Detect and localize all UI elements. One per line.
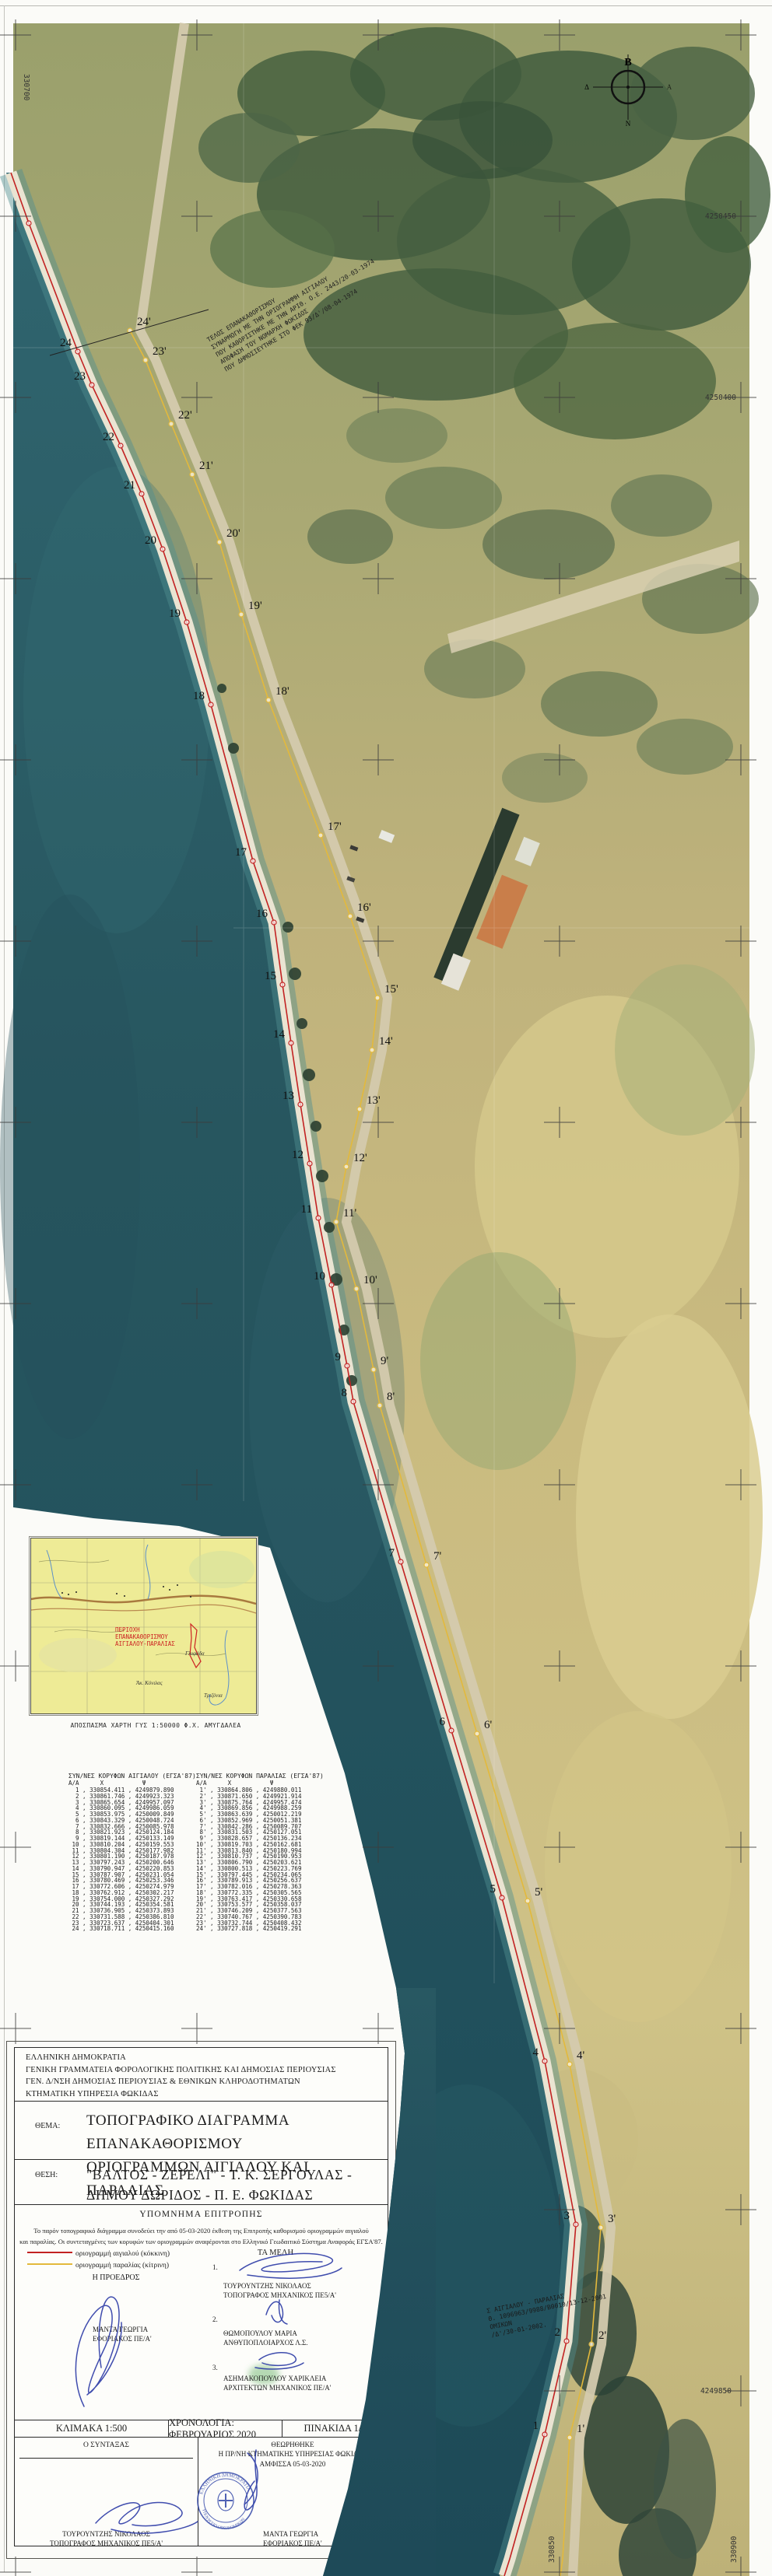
compass-north-label: Β [624,57,631,68]
survey-point-label: 12 [292,1149,304,1161]
survey-point-label: 21' [199,460,213,472]
author-label: Ο ΣΥΝΤΑΞΑΣ [15,2441,198,2449]
survey-point [567,2062,572,2067]
vegetation-patch [482,509,615,579]
survey-point-label: 18' [275,685,289,698]
vegetation-patch [514,323,716,439]
approval-place-date: ΑΜΦΙΣΣΑ 05-03-2020 [198,2460,388,2468]
legend-label: οριογραμμή παραλίας (κίτρινη) [75,2262,169,2270]
survey-point [26,221,31,226]
survey-point-label: 10' [363,1274,377,1286]
inset-stream [47,1550,62,1599]
inset-placename: Άκ. Κόνιλας [135,1680,163,1686]
inset-stream [146,1545,150,1599]
chairwoman-label: Η ΠΡΟΕΔΡΟΣ [61,2273,170,2282]
survey-point-label: 7' [433,1550,442,1563]
author-title: ΤΟΠΟΓΡΑΦΟΣ ΜΗΧΑΝΙΚΟΣ ΠΕ5/Α' [15,2539,198,2548]
survey-point [567,2435,572,2440]
survey-point-label: 15' [384,983,398,996]
member-name: ΤΟΥΡΟΥΝΤΖΗΣ ΝΙΚΟΛΑΟΣ [223,2281,336,2291]
survey-point [334,1220,339,1224]
survey-point-label: 4 [533,2046,539,2059]
survey-point [542,2059,547,2063]
paralia-coordinates-table: ΣΥΝ/ΝΕΣ ΚΟΡΥΦΩΝ ΠΑΡΑΛΙΑΣ (ΕΓΣΑ'87) Α/Α Χ… [196,1773,340,1932]
survey-point [289,1041,293,1045]
survey-point-label: 14 [273,1028,286,1041]
inset-placename: Τριζόνια [204,1692,223,1699]
survey-point-label: 14' [379,1035,393,1048]
survey-point [266,698,271,702]
subject-label: ΘΕΜΑ: [35,2122,60,2130]
survey-point-label: 6' [484,1719,493,1731]
survey-point-label: 9' [381,1355,389,1367]
inset-redetermination-area-outline [190,1624,201,1668]
member-number: 1. [212,2263,218,2272]
survey-point [357,1107,362,1111]
member-number: 2. [212,2315,218,2324]
approved-authority: Η ΠΡ/ΝΗ ΚΤΗΜΑΤΙΚΗΣ ΥΠΗΡΕΣΙΑΣ ΦΩΚΙΔΑΣ [198,2449,388,2459]
survey-point-label: 16 [256,908,268,920]
member-title: ΑΝΘΥΠΟΠΛΟΙΑΡΧΟΣ Λ.Σ. [223,2338,307,2347]
survey-point-label: 15 [265,970,276,982]
survey-point-label: 16' [357,901,371,914]
inset-area-label-line: ΑΙΓΙΑΛΟΥ-ΠΑΡΑΛΙΑΣ [115,1640,175,1647]
survey-point [239,612,244,617]
survey-point-label: 11 [301,1203,312,1216]
vegetation-patch [424,639,525,698]
survey-point [348,914,353,919]
grid-y-label: 4250450 [705,212,736,221]
inset-area-label: ΠΕΡΙΟΧΗ ΕΠΑΝΑΚΑΘΟΡΙΣΜΟΥ ΑΙΓΙΑΛΟΥ-ΠΑΡΑΛΙΑ… [115,1626,175,1647]
survey-point [370,1048,374,1052]
paralia-line-swatch [27,2263,72,2265]
survey-point [329,1283,334,1287]
survey-point-label: 24' [137,316,151,328]
member-entry: 2. ΘΩΜΟΠΟΥΛΟΥ ΜΑΡΙΑ ΑΝΘΥΠΟΠΛΟΙΑΡΧΟΣ Λ.Σ. [223,2329,307,2347]
survey-point-label: 19' [248,600,262,612]
vegetation-patch [420,1252,576,1470]
vegetation-patch [545,1711,732,2022]
inset-road [31,1605,256,1613]
survey-point-label: 10 [314,1270,325,1283]
vegetation-patch [385,467,502,529]
sheet-cell: ΠΙΝΑΚΙΔΑ 1/1 [282,2420,388,2437]
survey-point-label: 3 [564,2210,570,2222]
table-rows: 1 , 330854.411 , 4249879.890 2 , 330861.… [68,1787,212,1932]
sea-texture [0,894,140,1439]
member-entry: 3. ΑΣΗΜΑΚΟΠΟΥΛΟΥ ΧΑΡΙΚΛΕΙΑ ΑΡΧΙΤΕΚΤΩΝ ΜΗ… [223,2374,331,2392]
approved-label: ΘΕΩΡΗΘΗΚΕ [198,2440,388,2449]
survey-point [574,2222,578,2227]
survey-point [351,1399,356,1404]
coord-row: 24' , 330727.818 , 4250419.291 [196,1926,340,1932]
grid-y-label: 4249850 [700,2387,732,2396]
member-title: ΑΡΧΙΤΕΚΤΩΝ ΜΗΧΑΝΙΚΟΣ ΠΕ/Α' [223,2383,331,2392]
vegetation-patch [346,408,447,463]
survey-point-label: 2' [598,2329,607,2342]
survey-point [589,2342,594,2347]
inset-area-label-line: ΠΕΡΙΟΧΗ [115,1626,140,1633]
survey-point-label: 7 [389,1547,395,1559]
survey-point [564,2339,569,2343]
survey-point-label: 1' [577,2423,585,2435]
table-column-headers: Α/Α Χ Ψ [196,1780,340,1787]
signatures-row: Ο ΣΥΝΤΑΞΑΣ ΤΟΥΡΟΥΝΤΖΗΣ ΝΙΚΟΛΑΟΣ ΤΟΠΟΓΡΑΦ… [15,2437,388,2546]
vegetation-patch [685,136,770,253]
vegetation-patch [611,474,712,537]
survey-point-label: 13' [367,1094,381,1107]
inset-road [31,1596,256,1604]
members-label: ΤΑ ΜΕΛΗ [213,2249,338,2257]
survey-point [475,1731,479,1736]
survey-point-label: 12' [353,1152,367,1164]
aigialos-line-swatch [27,2252,72,2253]
survey-point-label: 23 [74,370,86,383]
survey-point [371,1367,376,1372]
survey-point [169,422,174,426]
survey-point-label: 11' [343,1207,356,1220]
survey-point [500,1895,504,1900]
survey-point [298,1102,303,1107]
scale-date-sheet-row: ΚΛΙΜΑΚΑ 1:500 ΧΡΟΝΟΛΟΓΙΑ: ΦΕΒΡΟΥΑΡΙΟΣ 20… [15,2420,388,2437]
survey-point [280,982,285,987]
aigialos-coordinates-table: ΣΥΝ/ΝΕΣ ΚΟΡΥΦΩΝ ΑΙΓΙΑΛΟΥ (ΕΓΣΑ'87) Α/Α Χ… [68,1773,212,1932]
survey-point-label: 21 [124,479,135,492]
survey-point-label: 5 [490,1883,497,1895]
survey-point-label: 23' [153,345,167,358]
survey-point [184,620,189,625]
compass-east-label: Α [667,83,672,91]
location-label: ΘΕΣΗ: [35,2171,58,2179]
survey-point-label: 1 [533,2420,539,2432]
committee-note-heading: ΥΠΟΜΝΗΜΑ ΕΠΙΤΡΟΠΗΣ [15,2210,388,2219]
scale-cell: ΚΛΙΜΑΚΑ 1:500 [15,2420,169,2437]
survey-point [316,1216,321,1220]
committee-note-line: Το παρόν τοπογραφικό διάγραμμα συνοδεύει… [19,2225,383,2236]
chairwoman-name: ΜΑΝΤΑ ΓΕΩΡΓΙΑ [93,2325,152,2334]
issuing-authority: ΕΛΛΗΝΙΚΗ ΔΗΜΟΚΡΑΤΙΑ ΓΕΝΙΚΗ ΓΡΑΜΜΑΤΕΙΑ ΦΟ… [15,2048,388,2101]
survey-point-label: 6 [440,1716,446,1728]
sea-texture [23,467,210,933]
survey-point-label: 20' [226,527,240,540]
vegetation-patch [637,719,733,775]
survey-point [89,383,94,387]
title-block: ΕΛΛΗΝΙΚΗ ΔΗΜΟΚΡΑΤΙΑ ΓΕΝΙΚΗ ΓΡΑΜΜΑΤΕΙΑ ΦΟ… [14,2047,388,2546]
sea-texture [374,2084,560,2427]
grid-y-label: 4250400 [705,394,736,402]
survey-point [598,2225,603,2230]
survey-point [190,472,195,477]
org-line: ΓΕΝ. Δ/ΝΣΗ ΔΗΜΟΣΙΑΣ ΠΕΡΙΟΥΣΙΑΣ & ΕΘΝΙΚΩΝ… [26,2076,388,2088]
org-line: ΚΤΗΜΑΤΙΚΗ ΥΠΗΡΕΣΙΑ ΦΩΚΙΔΑΣ [26,2088,388,2101]
grid-x-label: 330700 [22,74,30,101]
vegetation-patch [541,671,658,737]
grid-x-label: 330850 [548,2536,556,2563]
vegetation-patch [210,210,335,288]
survey-point-label: 2 [555,2326,561,2339]
vegetation-patch [307,509,393,564]
author-name: ΤΟΥΡΟΥΝΤΖΗΣ ΝΙΚΟΛΑΟΣ [15,2529,198,2539]
survey-point [118,443,123,448]
table-rows: 1' , 330864.806 , 4249880.011 2' , 33087… [196,1787,340,1932]
survey-point [318,833,323,838]
survey-point-label: 13 [282,1090,294,1102]
inset-terrain [189,1551,254,1588]
survey-point [344,1164,349,1169]
survey-point-label: 8 [342,1387,348,1399]
survey-point-label: 20 [145,534,156,547]
legend: οριογραμμή αιγιαλού (κόκκινη) οριογραμμή… [27,2245,170,2269]
org-line: ΕΛΛΗΝΙΚΗ ΔΗΜΟΚΡΑΤΙΑ [26,2052,388,2064]
survey-point-label: 5' [535,1886,543,1899]
divider [19,2458,193,2459]
survey-point-label: 8' [387,1391,395,1403]
member-title: ΤΟΠΟΓΡΑΦΟΣ ΜΗΧΑΝΙΚΟΣ ΠΕ5/Α' [223,2291,336,2300]
location-line: ΔΗΜΟΥ ΔΩΡΙΔΟΣ - Π. Ε. ΦΩΚΙΔΑΣ [86,2185,352,2205]
table-column-headers: Α/Α Χ Ψ [68,1780,212,1787]
approval-cell: ΘΕΩΡΗΘΗΚΕ Η ΠΡ/ΝΗ ΚΤΗΜΑΤΙΚΗΣ ΥΠΗΡΕΣΙΑΣ Φ… [198,2438,388,2546]
survey-point [143,358,148,362]
vegetation-patch [630,47,755,140]
survey-point [345,1363,349,1368]
member-name: ΘΩΜΟΠΟΥΛΟΥ ΜΑΡΙΑ [223,2329,307,2338]
table-title: ΣΥΝ/ΝΕΣ ΚΟΡΥΦΩΝ ΠΑΡΑΛΙΑΣ (ΕΓΣΑ'87) [196,1773,340,1780]
survey-point-label: 18 [193,690,205,702]
survey-point [272,920,276,925]
grid-x-label: 330900 [730,2536,739,2563]
org-line: ΓΕΝΙΚΗ ΓΡΑΜΜΑΤΕΙΑ ΦΟΡΟΛΟΓΙΚΗΣ ΠΟΛΙΤΙΚΗΣ … [26,2064,388,2077]
inset-terrain [39,1638,117,1672]
survey-point [217,540,222,544]
survey-point [354,1286,359,1291]
survey-point [398,1559,403,1564]
vegetation-patch [576,1314,763,1719]
member-number: 3. [212,2363,218,2372]
survey-point [160,547,165,551]
survey-point [209,702,213,707]
approver-title: ΕΦΟΡΙΑΚΟΣ ΠΕ/Α' [263,2539,322,2548]
survey-point-label: 9 [335,1351,342,1363]
table-title: ΣΥΝ/ΝΕΣ ΚΟΡΥΦΩΝ ΑΙΓΙΑΛΟΥ (ΕΓΣΑ'87) [68,1773,212,1780]
survey-point-label: 22' [178,409,192,422]
vegetation-patch [502,753,588,803]
survey-point-label: 22 [103,431,114,443]
subject-section: ΘΕΜΑ: ΤΟΠΟΓΡΑΦΙΚΟ ΔΙΑΓΡΑΜΜΑ ΕΠΑΝΑΚΑΘΟΡΙΣ… [15,2101,388,2159]
survey-point [377,1403,382,1408]
chairwoman-title: ΕΦΟΡΙΑΚΟΣ ΠΕ/Α' [93,2334,152,2343]
inset-placename: Γλυφάδα [184,1650,205,1657]
survey-point-label: 17' [328,821,342,833]
survey-point [251,859,255,863]
survey-point [307,1161,312,1166]
vegetation-patch [654,2419,716,2559]
coord-row: 24 , 330718.711 , 4250415.160 [68,1926,212,1932]
survey-point [139,492,144,496]
inset-map-caption: ΑΠΟΣΠΑΣΜΑ ΧΑΡΤΗ ΓΥΣ 1:50000 Φ.Χ. ΑΜΥΓΔΑΛ… [43,1722,268,1729]
survey-point-label: 24 [60,337,72,349]
survey-point-label: 17 [235,846,247,859]
survey-point [525,1899,530,1903]
location-section: ΘΕΣΗ: "ΒΑΛΤΟΣ - ΖΕΡΕΛΙ" - Τ. Κ. ΣΕΡΓΟΥΛΑ… [15,2159,388,2204]
survey-point [75,349,80,354]
survey-point [449,1728,454,1733]
member-entry: 1. ΤΟΥΡΟΥΝΤΖΗΣ ΝΙΚΟΛΑΟΣ ΤΟΠΟΓΡΑΦΟΣ ΜΗΧΑΝ… [223,2281,336,2300]
subject-line: ΤΟΠΟΓΡΑΦΙΚΟ ΔΙΑΓΡΑΜΜΑ ΕΠΑΝΑΚΑΘΟΡΙΣΜΟΥ [86,2109,388,2156]
date-cell: ΧΡΟΝΟΛΟΓΙΑ: ΦΕΒΡΟΥΑΡΙΟΣ 2020 [169,2420,282,2437]
survey-point [375,996,380,1000]
survey-point-label: 19 [169,607,181,620]
survey-point [424,1563,429,1567]
vegetation-patch [615,964,755,1136]
survey-point-label: 3' [608,2213,616,2225]
compass-west-label: Δ [584,83,589,91]
scanned-topographic-diagram: 1234567891011121314151617181920212223241… [0,0,772,2576]
survey-point [542,2432,547,2437]
member-name: ΑΣΗΜΑΚΟΠΟΥΛΟΥ ΧΑΡΙΚΛΕΙΑ [223,2374,331,2383]
survey-point-label: 4' [577,2049,585,2062]
committee-legend-section: ΥΠΟΜΝΗΜΑ ΕΠΙΤΡΟΠΗΣ Το παρόν τοπογραφικό … [15,2204,388,2420]
vegetation-patch [412,101,553,179]
approver-name: ΜΑΝΤΑ ΓΕΩΡΓΙΑ [263,2529,322,2539]
location-line: "ΒΑΛΤΟΣ - ΖΕΡΕΛΙ" - Τ. Κ. ΣΕΡΓΟΥΛΑΣ - [86,2165,352,2185]
vegetation-patch [198,113,300,183]
author-cell: Ο ΣΥΝΤΑΞΑΣ ΤΟΥΡΟΥΝΤΖΗΣ ΝΙΚΟΛΑΟΣ ΤΟΠΟΓΡΑΦ… [15,2438,198,2546]
inset-villages [61,1584,191,1598]
inset-location-map: ΠΕΡΙΟΧΗ ΕΠΑΝΑΚΑΘΟΡΙΣΜΟΥ ΑΙΓΙΑΛΟΥ-ΠΑΡΑΛΙΑ… [30,1538,257,1714]
inset-area-label-line: ΕΠΑΝΑΚΑΘΟΡΙΣΜΟΥ [115,1633,168,1640]
compass-south-label: Ν [626,120,631,128]
